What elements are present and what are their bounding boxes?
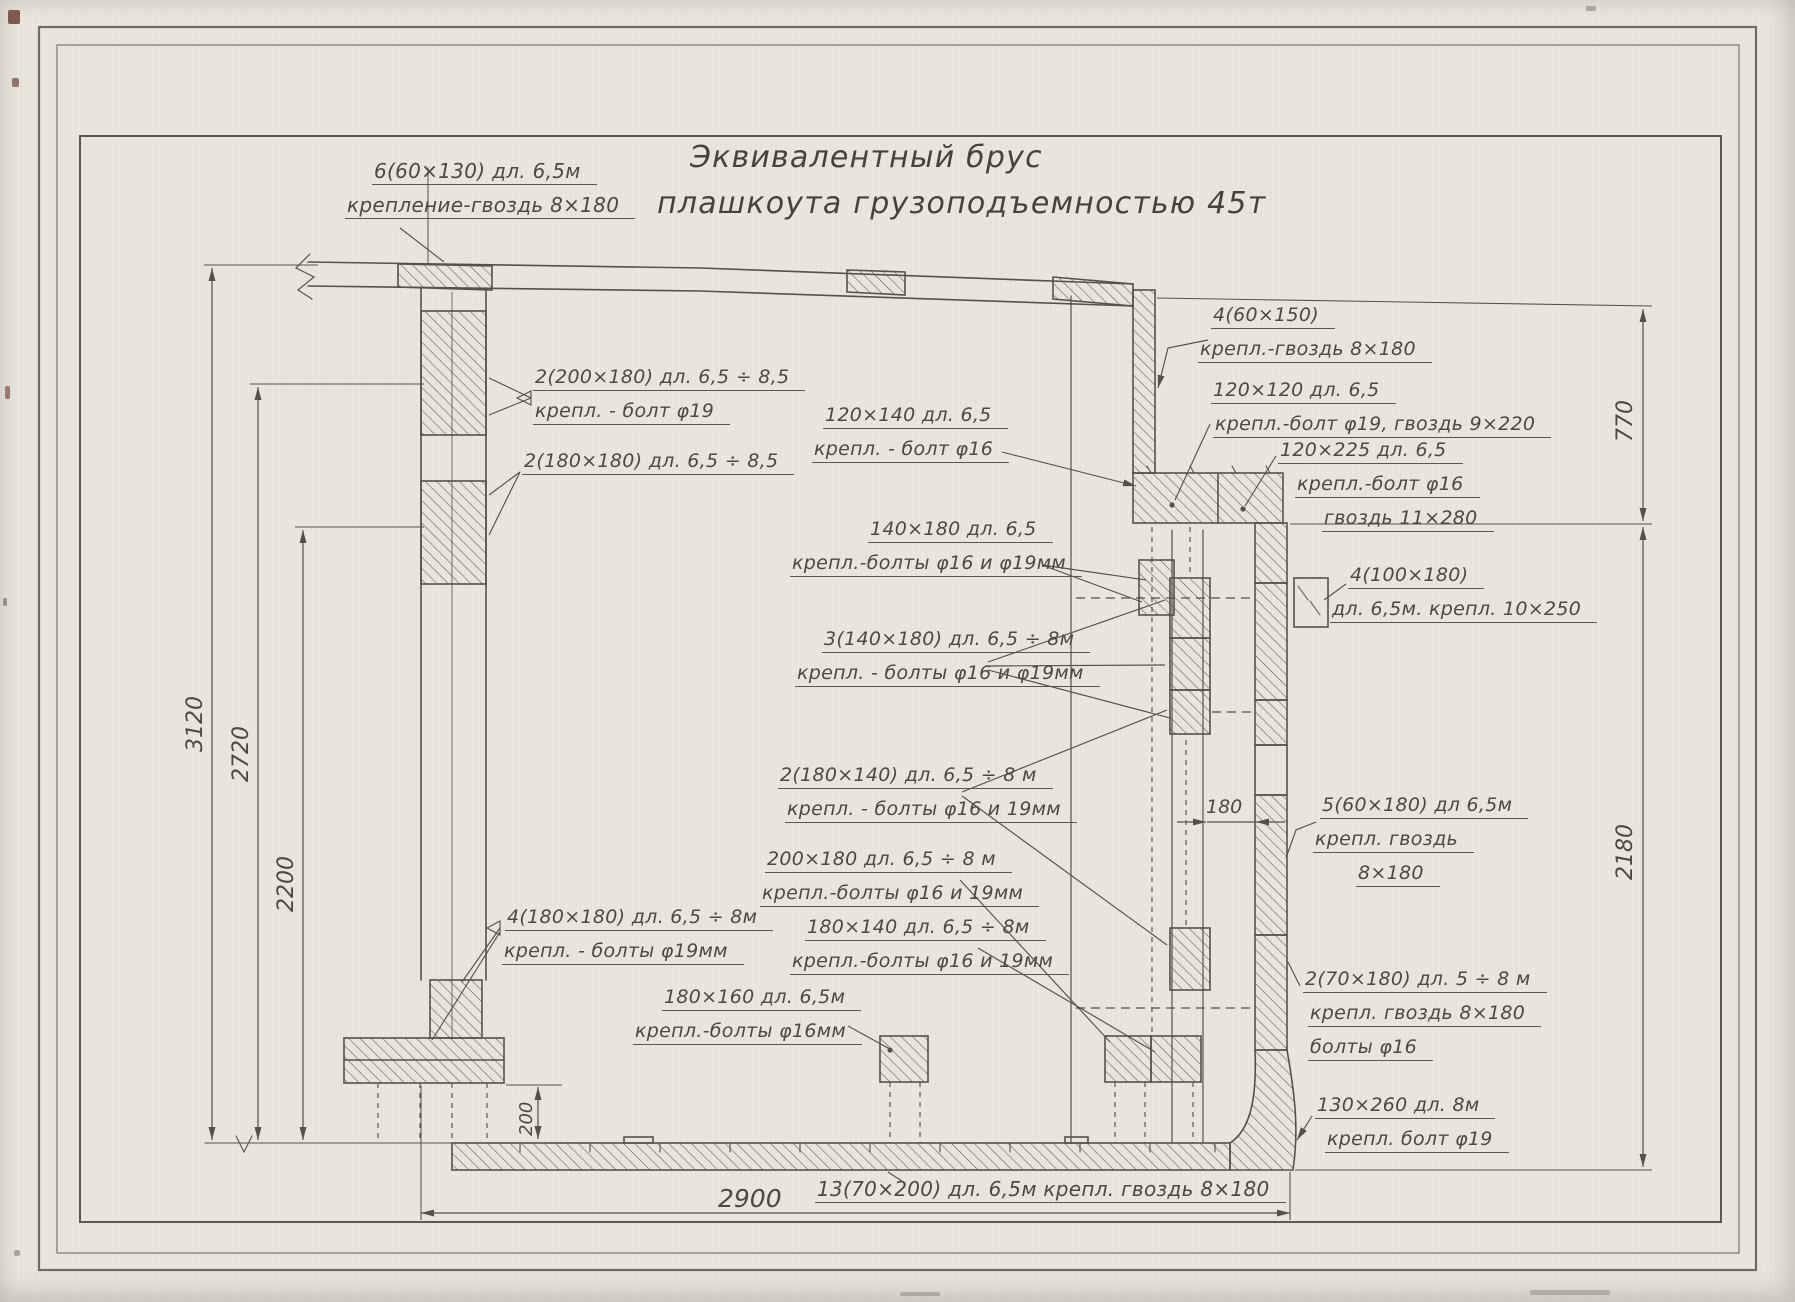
label-beam-3-140x180-line1: 3(140×180) дл. 6,5 ÷ 8м <box>822 628 1090 653</box>
label-shell-5-60x180: 5(60×180) дл 6,5м крепл. гвоздь 8×180 <box>1313 794 1528 896</box>
label-keel-130x260-line2: крепл. болт φ19 <box>1325 1128 1509 1153</box>
label-chock-180x140: 180×140 дл. 6,5 ÷ 8м крепл.-болты φ16 и … <box>790 916 1069 984</box>
label-frame-200x180: 2(200×180) дл. 6,5 ÷ 8,5 крепл. - болт φ… <box>533 366 805 434</box>
label-beam-140x180-line2: крепл.-болты φ16 и φ19мм <box>790 552 1082 577</box>
label-shell-2-70x180-line1: 2(70×180) дл. 5 ÷ 8 м <box>1303 968 1547 993</box>
label-deck-4-60x150-line1: 4(60×150) <box>1211 304 1335 329</box>
label-beam-120x140: 120×140 дл. 6,5 крепл. - болт φ16 <box>812 404 1009 472</box>
drawing-title-line1: Эквивалентный брус <box>690 140 1043 175</box>
label-deck-chock-line1: 6(60×130) дл. 6,5м <box>372 160 597 185</box>
label-chock-2-180x140: 2(180×140) дл. 6,5 ÷ 8 м крепл. - болты … <box>778 764 1077 832</box>
dim-180: 180 <box>1206 796 1242 818</box>
label-frame-4-180x180-line1: 4(180×180) дл. 6,5 ÷ 8м <box>505 906 773 931</box>
label-beam-140x180-line1: 140×180 дл. 6,5 <box>868 518 1053 543</box>
label-keel-130x260-line1: 130×260 дл. 8м <box>1315 1094 1495 1119</box>
label-nailer-4-100x180: 4(100×180) дл. 6,5м. крепл. 10×250 <box>1330 564 1597 632</box>
label-beam-3-140x180: 3(140×180) дл. 6,5 ÷ 8м крепл. - болты φ… <box>795 628 1100 696</box>
label-deck-chock: 6(60×130) дл. 6,5м крепление-гвоздь 8×18… <box>345 160 635 228</box>
label-frame-200x180-line1: 2(200×180) дл. 6,5 ÷ 8,5 <box>533 366 805 391</box>
label-nailer-4-100x180-line1: 4(100×180) <box>1348 564 1484 589</box>
member-4-60x150 <box>1133 290 1155 473</box>
label-chock-180x140-line2: крепл.-болты φ16 и 19мм <box>790 950 1069 975</box>
label-frame-180x180-line1: 2(180×180) дл. 6,5 ÷ 8,5 <box>522 450 794 475</box>
label-frame-4-180x180-line2: крепл. - болты φ19мм <box>502 940 744 965</box>
bilge-curve <box>1230 1050 1296 1170</box>
drawing-title-line2: плашкоута грузоподъемностью 45т <box>657 186 1266 221</box>
label-stringer-120x225: 120×225 дл. 6,5 крепл.-болт φ16 гвоздь 1… <box>1278 439 1494 541</box>
nail-ticks <box>1147 466 1270 473</box>
label-shell-5-60x180-line1: 5(60×180) дл 6,5м <box>1320 794 1528 819</box>
label-chock-2-180x140-line2: крепл. - болты φ16 и 19мм <box>785 798 1077 823</box>
label-bottom-planks-note: 13(70×200) дл. 6,5м крепл. гвоздь 8×180 <box>815 1178 1286 1212</box>
label-deck-chock-line2: крепление-гвоздь 8×180 <box>345 194 635 219</box>
dim-200: 200 <box>516 1102 537 1136</box>
label-stringer-120x120-line1: 120×120 дл. 6,5 <box>1211 379 1396 404</box>
label-bottom-planks-note-line: 13(70×200) дл. 6,5м крепл. гвоздь 8×180 <box>815 1178 1286 1203</box>
label-chock-180x140-line1: 180×140 дл. 6,5 ÷ 8м <box>805 916 1046 941</box>
label-deck-4-60x150-line2: крепл.-гвоздь 8×180 <box>1198 338 1432 363</box>
label-frame-4-180x180: 4(180×180) дл. 6,5 ÷ 8м крепл. - болты φ… <box>502 906 773 974</box>
label-chock-200x180-line1: 200×180 дл. 6,5 ÷ 8 м <box>765 848 1012 873</box>
dim-2900: 2900 <box>718 1184 782 1213</box>
label-deck-4-60x150: 4(60×150) крепл.-гвоздь 8×180 <box>1198 304 1432 372</box>
label-shell-5-60x180-line3: 8×180 <box>1356 862 1440 887</box>
break-mark-bottom <box>236 1136 252 1152</box>
label-stringer-120x225-line1: 120×225 дл. 6,5 <box>1278 439 1463 464</box>
label-beam-120x140-line2: крепл. - болт φ16 <box>812 438 1009 463</box>
label-chock-180x160: 180×160 дл. 6,5м крепл.-болты φ16мм <box>633 986 862 1054</box>
label-stringer-120x225-line2: крепл.-болт φ16 <box>1295 473 1480 498</box>
bottom-planking <box>205 1136 1230 1170</box>
label-stringer-120x120-line2: крепл.-болт φ19, гвоздь 9×220 <box>1213 413 1551 438</box>
dim-2180: 2180 <box>1613 824 1638 880</box>
dim-2720: 2720 <box>229 726 254 782</box>
dim-2200: 2200 <box>274 856 299 912</box>
drawing-sheet: Эквивалентный брус плашкоута грузоподъем… <box>0 0 1795 1302</box>
label-chock-200x180-line2: крепл.-болты φ16 и 19мм <box>760 882 1039 907</box>
label-nailer-4-100x180-line2: дл. 6,5м. крепл. 10×250 <box>1330 598 1597 623</box>
label-stringer-120x120: 120×120 дл. 6,5 крепл.-болт φ19, гвоздь … <box>1211 379 1551 447</box>
label-chock-180x160-line1: 180×160 дл. 6,5м <box>662 986 861 1011</box>
label-chock-200x180: 200×180 дл. 6,5 ÷ 8 м крепл.-болты φ16 и… <box>760 848 1039 916</box>
break-mark-deck <box>296 254 314 299</box>
label-chock-2-180x140-line1: 2(180×140) дл. 6,5 ÷ 8 м <box>778 764 1053 789</box>
label-shell-2-70x180-line2: крепл. гвоздь 8×180 <box>1308 1002 1541 1027</box>
label-stringer-120x225-line3: гвоздь 11×280 <box>1322 507 1494 532</box>
label-frame-200x180-line2: крепл. - болт φ19 <box>533 400 730 425</box>
deck-chock-60x130 <box>398 264 492 290</box>
label-keel-130x260: 130×260 дл. 8м крепл. болт φ19 <box>1315 1094 1509 1162</box>
label-shell-5-60x180-line2: крепл. гвоздь <box>1313 828 1474 853</box>
dim-770: 770 <box>1613 400 1638 442</box>
label-frame-180x180: 2(180×180) дл. 6,5 ÷ 8,5 <box>522 450 794 484</box>
label-shell-2-70x180: 2(70×180) дл. 5 ÷ 8 м крепл. гвоздь 8×18… <box>1303 968 1547 1070</box>
label-beam-3-140x180-line2: крепл. - болты φ16 и φ19мм <box>795 662 1100 687</box>
label-beam-120x140-line1: 120×140 дл. 6,5 <box>823 404 1008 429</box>
label-beam-140x180: 140×180 дл. 6,5 крепл.-болты φ16 и φ19мм <box>790 518 1082 586</box>
dim-3120: 3120 <box>183 696 208 752</box>
label-chock-180x160-line2: крепл.-болты φ16мм <box>633 1020 862 1045</box>
left-frame <box>344 168 504 1083</box>
label-shell-2-70x180-line3: болты φ16 <box>1308 1036 1433 1061</box>
